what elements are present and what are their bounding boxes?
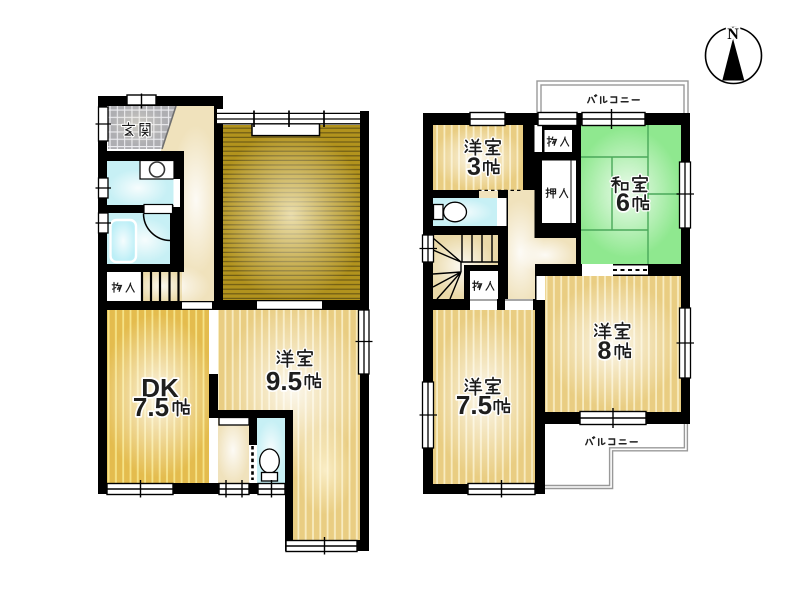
svg-text:3: 3 [467,153,481,181]
svg-text:9.5: 9.5 [266,366,302,396]
svg-text:6: 6 [616,189,630,217]
svg-text:8: 8 [598,337,612,365]
svg-text:7.5: 7.5 [456,390,492,420]
svg-text:N: N [727,26,739,43]
svg-text:7.5: 7.5 [133,392,169,422]
